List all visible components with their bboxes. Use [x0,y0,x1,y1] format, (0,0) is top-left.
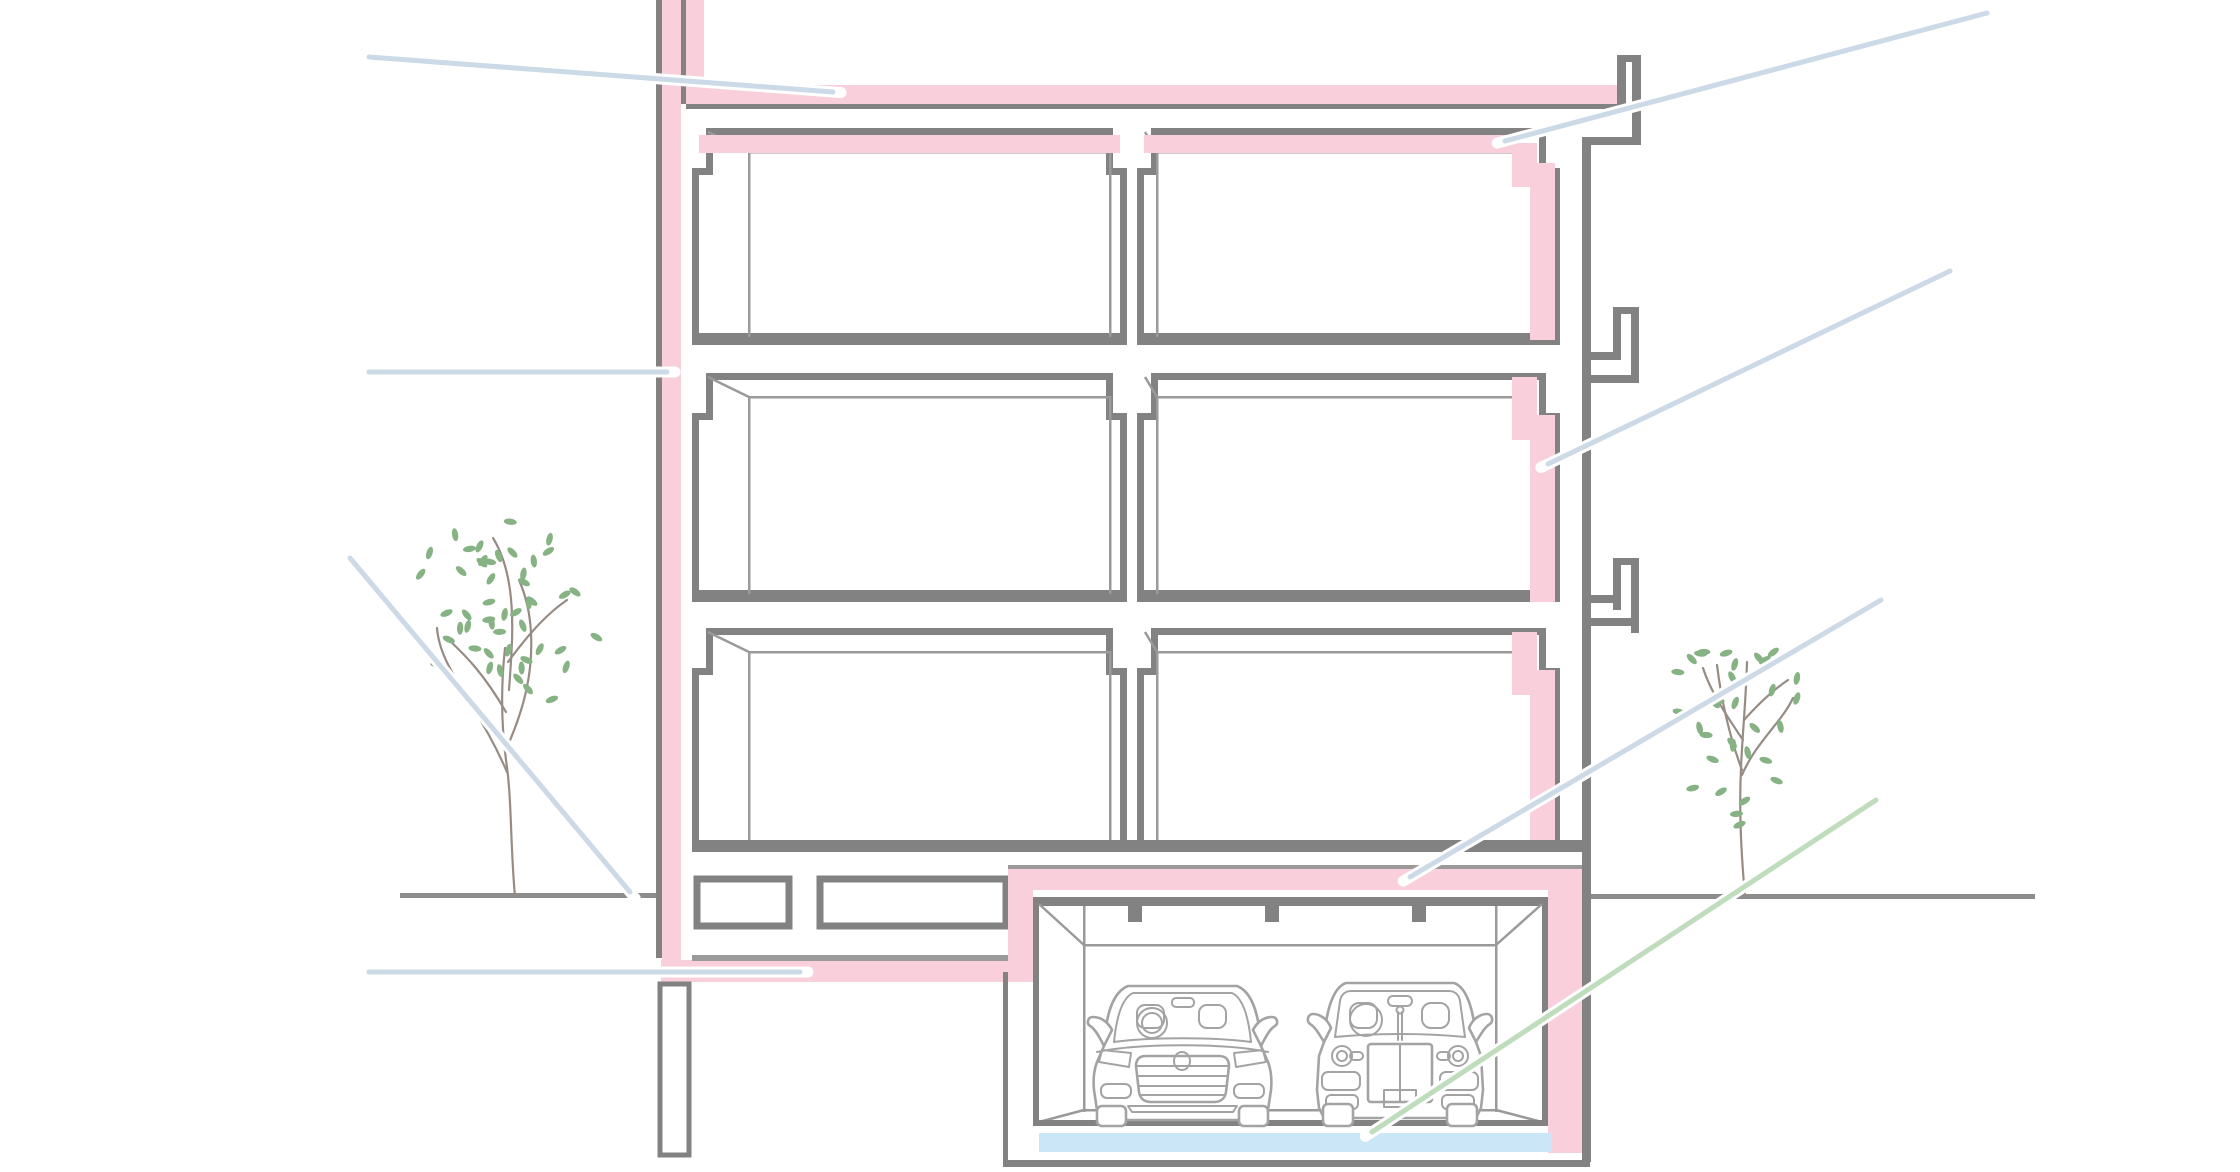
leaf [463,619,472,633]
room-inner-line [1109,151,1112,337]
garage-inner-line [1083,944,1497,947]
room-inner-line [1156,396,1512,399]
car-wheel [1447,1104,1477,1126]
garage-ceiling-insulation [1008,869,1582,890]
room-border [692,668,699,852]
leaf [439,608,453,619]
right-wall-insulation-strips [1512,143,1555,852]
basement-slab-line [692,955,1008,961]
roof-slab-line [686,104,1622,109]
room-border [706,373,1113,380]
ground-line-right [1590,894,2035,899]
room [1137,373,1560,602]
room-inner-line [748,151,751,337]
room-inner-line [1156,396,1159,594]
leaf [1686,784,1700,793]
leaf [506,546,519,560]
leaf [512,672,525,686]
room-border [1137,668,1144,852]
room-border [1539,373,1546,420]
room-border [1120,668,1127,852]
leaf [454,564,468,577]
room-inner-line [748,396,1109,399]
room-floor-border [1137,333,1560,345]
building-section-diagram [0,0,2240,1172]
leaf [545,694,559,704]
room-inner-line [748,651,751,844]
leaf [457,622,464,635]
callout-lines [350,13,1987,1136]
leaf [1705,754,1719,764]
ceiling-beam-stub [1265,897,1279,922]
room-border [706,628,1113,635]
ground-line [1590,894,2035,899]
leaf [425,546,435,560]
room [1137,128,1560,345]
leaf [1671,668,1685,676]
tree-branch [1744,680,1788,720]
foundation-line [1003,972,1008,1160]
leaf [451,528,459,542]
callout-top-ceiling-insulation-right [1505,13,1987,141]
callout-right-wall-insulation [1548,271,1950,464]
room-inner-line [1156,651,1159,844]
leaf [530,554,538,568]
wall-line [1582,141,1591,1162]
parapet-inner-line [681,0,686,104]
garage-left-wall [1033,897,1039,1126]
room-floor-border [692,590,1127,602]
leaf [553,644,567,656]
room-inner-line [748,651,1109,654]
leaf [503,518,517,526]
leaf [518,661,525,674]
room-border [1120,413,1127,602]
wall-outer-line [656,0,662,958]
room-inner-line [1156,651,1512,654]
room-border [1137,168,1144,345]
room-border [706,128,1113,135]
room [1137,628,1560,852]
ground-line [400,893,662,898]
room-inner-line [748,396,751,594]
tree-leaves [1671,646,1802,830]
leaf [545,532,554,546]
top-ceiling-insulation-right [1144,135,1512,153]
room-border [1151,373,1546,380]
foundation-pier-left [660,984,689,1155]
tree-left [414,518,603,897]
right-exterior-wall [1582,141,1639,1162]
garage-inner-line [1495,906,1498,1112]
rooms [692,128,1560,852]
tree-trunk [1740,662,1747,897]
garage-inner-line [1083,906,1086,1112]
room [692,128,1127,345]
room-floor-border [1137,590,1560,602]
room-border [1120,168,1127,345]
leaf [561,660,571,674]
leaf [482,598,496,607]
garage-bottom-line [1003,1160,1590,1167]
room-inner-line [1109,396,1112,594]
parapet-insulation [686,0,704,86]
ceiling-beam-stub [1128,897,1142,922]
room-border [1151,128,1546,135]
left-wall-insulation [662,0,681,982]
car-wheel [1097,1106,1126,1126]
room-border [1539,628,1546,675]
callout-garage-ceiling-insulation [1410,600,1881,877]
leaf [1769,775,1783,785]
parapet-line [1617,55,1626,104]
room-border [1151,628,1546,635]
room [692,628,1127,852]
leaf [517,619,528,633]
callout-ground-level-at-wall-base [350,558,630,892]
leaf [485,572,497,586]
leaf [482,647,495,661]
ground-vent-left [697,879,789,926]
leaf [589,631,603,643]
leaf [474,539,485,553]
ceiling-beam-stub [1412,897,1426,922]
room-inner-line [1109,651,1112,844]
car-right [1308,983,1492,1126]
car-left [1088,986,1277,1126]
garage-corner-line [1039,904,1084,945]
leaf [1730,696,1740,710]
leaf [534,642,545,656]
garage-corner-line [1496,904,1542,945]
room-border [692,413,699,602]
leaf [485,661,494,675]
room-border [1137,413,1144,602]
leaf [500,607,508,621]
parapet-line [1632,55,1641,144]
car-wheel [1323,1104,1353,1126]
leaf [462,545,476,553]
leaf [1697,649,1710,655]
garage-ceiling-line [1033,897,1548,906]
car-wheel [1239,1106,1268,1126]
room-floor-border [692,333,1127,345]
garage-ceiling-top-line [1008,865,1582,869]
ground-line-left [400,893,662,898]
leaf [468,645,481,652]
room [692,373,1127,602]
leaf [1730,657,1740,671]
leaf [1793,671,1801,685]
leaf [493,628,506,635]
leaf [1759,756,1773,766]
leaf [414,567,427,581]
room-inner-line [1156,151,1159,337]
leaf [460,608,473,622]
diagram-canvas [0,0,2240,1172]
room-border [692,168,699,345]
leaf [1748,721,1762,734]
leaf [1719,648,1733,658]
ground-vent-right [820,879,1006,926]
garage-floor-slab [1039,1133,1552,1152]
leaf [541,545,555,557]
callout-roof-slab-insulation [369,57,833,92]
top-ceiling-insulation-left [699,135,1120,153]
leaf [1714,786,1728,798]
